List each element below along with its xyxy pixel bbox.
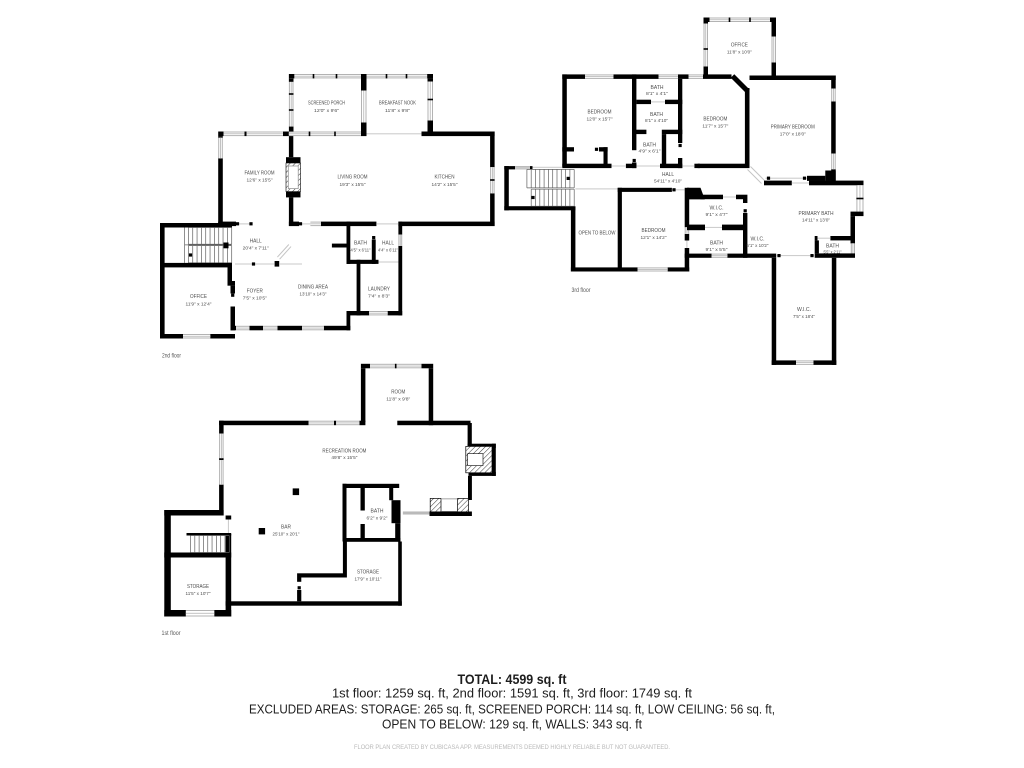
svg-text:BATH: BATH bbox=[650, 112, 663, 118]
svg-text:17'9" x 10'11": 17'9" x 10'11" bbox=[355, 577, 382, 583]
svg-text:ROOM: ROOM bbox=[391, 390, 405, 396]
svg-text:25'10" x 20'1": 25'10" x 20'1" bbox=[273, 531, 300, 537]
svg-text:12'1" x 14'2": 12'1" x 14'2" bbox=[641, 235, 667, 241]
svg-text:BEDROOM: BEDROOM bbox=[703, 117, 727, 123]
svg-text:BEDROOM: BEDROOM bbox=[642, 228, 666, 234]
svg-text:LAUNDRY: LAUNDRY bbox=[368, 286, 390, 292]
svg-text:PRIMARY BATH: PRIMARY BATH bbox=[799, 211, 834, 217]
svg-text:SCREENED PORCH: SCREENED PORCH bbox=[308, 101, 345, 107]
svg-text:5'1" x 10'2": 5'1" x 10'2" bbox=[747, 243, 769, 249]
svg-text:STORAGE: STORAGE bbox=[357, 570, 379, 576]
svg-text:DINING AREA: DINING AREA bbox=[298, 285, 328, 291]
svg-text:BATH: BATH bbox=[710, 240, 723, 246]
svg-text:12'0" x 15'7": 12'0" x 15'7" bbox=[587, 117, 613, 123]
svg-text:W.I.C.: W.I.C. bbox=[797, 307, 811, 313]
svg-text:14'2" x 15'5": 14'2" x 15'5" bbox=[432, 182, 458, 188]
svg-text:BREAKFAST NOOK: BREAKFAST NOOK bbox=[379, 101, 416, 107]
svg-text:3rd floor: 3rd floor bbox=[572, 287, 591, 294]
svg-text:BATH: BATH bbox=[651, 85, 664, 91]
svg-text:FOYER: FOYER bbox=[247, 288, 263, 294]
svg-text:9'1" x 5'5": 9'1" x 5'5" bbox=[706, 247, 728, 253]
svg-text:49'8" x 15'5": 49'8" x 15'5" bbox=[331, 455, 357, 461]
svg-text:14'11" x 13'0": 14'11" x 13'0" bbox=[802, 218, 830, 224]
svg-text:9'1" x 4'7": 9'1" x 4'7" bbox=[706, 212, 728, 218]
svg-text:KITCHEN: KITCHEN bbox=[435, 175, 455, 181]
svg-text:BATH: BATH bbox=[371, 509, 384, 515]
svg-text:PRIMARY BEDROOM: PRIMARY BEDROOM bbox=[771, 125, 815, 131]
svg-text:W.I.C.: W.I.C. bbox=[710, 205, 724, 211]
svg-text:5'5" x 2'11": 5'5" x 2'11" bbox=[824, 249, 842, 255]
svg-text:11'8" x 10'0": 11'8" x 10'0" bbox=[727, 50, 752, 56]
svg-text:BAR: BAR bbox=[281, 524, 291, 530]
svg-text:13'10" x 14'3": 13'10" x 14'3" bbox=[300, 292, 327, 298]
svg-text:BATH: BATH bbox=[643, 142, 656, 148]
svg-text:HALL: HALL bbox=[382, 240, 394, 246]
svg-text:11'5" x 10'7": 11'5" x 10'7" bbox=[186, 591, 211, 597]
svg-text:8'1" x 4'10": 8'1" x 4'10" bbox=[645, 118, 668, 124]
svg-text:7'4" x 8'3": 7'4" x 8'3" bbox=[368, 293, 390, 299]
svg-text:4'5" x 6'11": 4'5" x 6'11" bbox=[351, 247, 371, 253]
svg-text:BATH: BATH bbox=[826, 243, 839, 249]
svg-text:2nd floor: 2nd floor bbox=[162, 353, 181, 360]
svg-text:8'1" x 4'1": 8'1" x 4'1" bbox=[646, 91, 668, 97]
svg-text:19'3" x 15'5": 19'3" x 15'5" bbox=[340, 182, 366, 188]
svg-text:11'8" x 9'8": 11'8" x 9'8" bbox=[385, 108, 410, 114]
svg-text:FAMILY ROOM: FAMILY ROOM bbox=[245, 171, 275, 177]
svg-text:11'9" x 12'4": 11'9" x 12'4" bbox=[186, 302, 212, 308]
svg-text:17'0" x 18'0": 17'0" x 18'0" bbox=[780, 132, 806, 138]
svg-text:11'8" x 9'8": 11'8" x 9'8" bbox=[386, 396, 410, 402]
svg-text:BATH: BATH bbox=[354, 240, 367, 246]
svg-text:TOTAL: 4599 sq. ft: TOTAL: 4599 sq. ft bbox=[458, 672, 567, 687]
svg-text:FLOOR PLAN CREATED BY CUBICASA: FLOOR PLAN CREATED BY CUBICASA APP. MEAS… bbox=[354, 744, 670, 751]
svg-text:1st floor: 1259 sq. ft, 2nd fl: 1st floor: 1259 sq. ft, 2nd floor: 1591 … bbox=[332, 687, 693, 701]
svg-text:STORAGE: STORAGE bbox=[187, 584, 209, 590]
svg-text:EXCLUDED AREAS: STORAGE: 265 s: EXCLUDED AREAS: STORAGE: 265 sq. ft, SCR… bbox=[249, 703, 775, 717]
svg-text:HALL: HALL bbox=[250, 238, 262, 244]
svg-text:RECREATION ROOM: RECREATION ROOM bbox=[322, 448, 366, 454]
svg-text:12'0" x 9'6": 12'0" x 9'6" bbox=[314, 108, 339, 114]
svg-text:20'4" x 7'11": 20'4" x 7'11" bbox=[243, 246, 269, 252]
svg-text:54'11" x 4'10": 54'11" x 4'10" bbox=[654, 178, 682, 184]
svg-text:OFFICE: OFFICE bbox=[190, 294, 207, 300]
svg-text:OPEN TO BELOW: OPEN TO BELOW bbox=[579, 230, 616, 236]
svg-text:6'2" x 9'2": 6'2" x 9'2" bbox=[367, 515, 388, 521]
svg-text:OFFICE: OFFICE bbox=[731, 43, 748, 49]
svg-text:W.I.C.: W.I.C. bbox=[751, 236, 765, 242]
svg-text:7'5" x 18'4": 7'5" x 18'4" bbox=[793, 314, 815, 320]
svg-text:4'9" x 6'1": 4'9" x 6'1" bbox=[639, 148, 661, 154]
svg-text:LIVING ROOM: LIVING ROOM bbox=[338, 175, 368, 181]
svg-text:12'6" x 15'5": 12'6" x 15'5" bbox=[247, 178, 273, 184]
svg-text:1st floor: 1st floor bbox=[162, 630, 181, 637]
svg-text:11'7" x 15'7": 11'7" x 15'7" bbox=[702, 124, 728, 130]
svg-text:4'4" x 6'11": 4'4" x 6'11" bbox=[378, 247, 398, 253]
svg-text:OPEN TO BELOW: 129 sq. ft, WAL: OPEN TO BELOW: 129 sq. ft, WALLS: 343 sq… bbox=[382, 718, 642, 732]
svg-text:BEDROOM: BEDROOM bbox=[588, 110, 612, 116]
svg-text:7'5" x 10'5": 7'5" x 10'5" bbox=[243, 296, 267, 302]
svg-text:HALL: HALL bbox=[662, 172, 674, 178]
